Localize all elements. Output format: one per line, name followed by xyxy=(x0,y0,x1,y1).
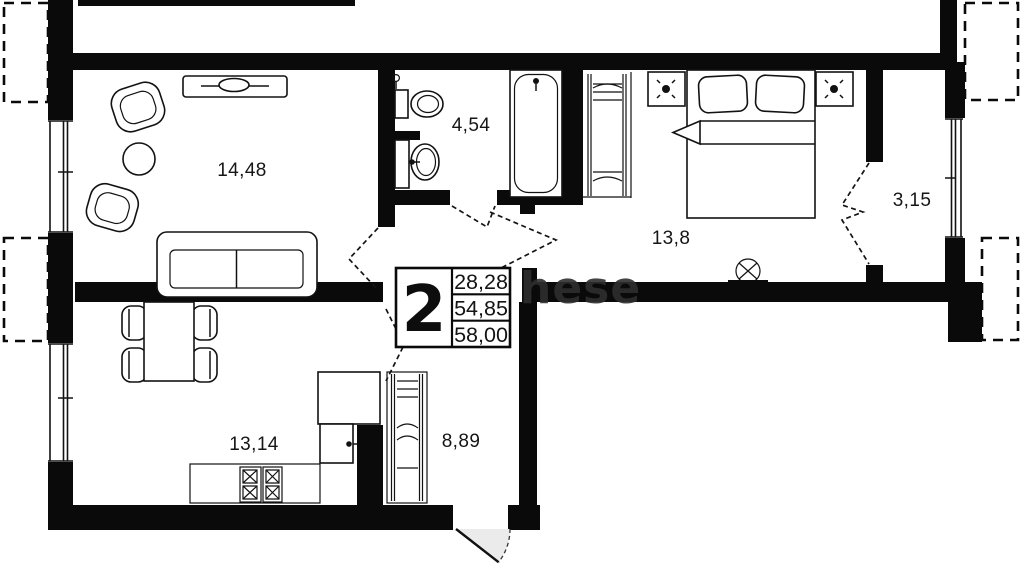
sink-icon xyxy=(395,140,439,188)
stove-icon xyxy=(240,467,282,502)
balcony-dashed-bottom-right xyxy=(982,238,1018,340)
living-room-furniture xyxy=(83,76,317,297)
living-room-door xyxy=(349,228,378,290)
vent-icon xyxy=(728,259,768,302)
toilet-icon xyxy=(393,75,443,118)
floor-plan-drawing: hese xyxy=(0,0,1024,564)
fridge-icon xyxy=(320,424,358,463)
floor-plan-canvas: hese xyxy=(0,0,1024,564)
apartment-type-number: 2 xyxy=(402,273,447,347)
info-value-2: 54,85 xyxy=(454,296,508,320)
sofa-icon xyxy=(157,232,317,297)
label-loggia: 3,15 xyxy=(893,190,932,211)
label-bedroom: 13,8 xyxy=(652,228,691,249)
window-loggia-right xyxy=(945,119,963,237)
balcony-door-icon xyxy=(842,163,869,264)
balcony-dashed-top-right xyxy=(965,3,1018,100)
dining-table-icon xyxy=(144,302,194,381)
balcony-dashed-top-left xyxy=(4,3,48,102)
balcony-dashed-mid-left xyxy=(4,238,48,341)
entrance-door-swing-icon xyxy=(456,529,510,562)
label-living-room: 14,48 xyxy=(217,160,267,181)
hallway-wardrobe xyxy=(387,372,427,503)
armchair-icon xyxy=(83,180,142,235)
window-kitchen-left xyxy=(48,344,73,461)
kitchen-furniture xyxy=(122,302,380,503)
label-hallway: 8,89 xyxy=(442,431,481,452)
tv-console-icon xyxy=(183,76,287,97)
bathtub-icon xyxy=(510,70,562,197)
info-value-3: 58,00 xyxy=(454,323,508,347)
info-value-1: 28,28 xyxy=(454,270,508,294)
bathroom-door xyxy=(452,206,495,227)
bedroom-wardrobe xyxy=(583,72,631,198)
watermark-text: hese xyxy=(520,263,641,314)
label-bathroom: 4,54 xyxy=(452,115,491,136)
bedroom-door xyxy=(490,212,556,269)
apartment-info-box: 2 28,28 54,85 58,00 xyxy=(396,268,510,347)
coffee-table-icon xyxy=(123,143,155,175)
double-bed-icon xyxy=(673,70,815,218)
label-kitchen: 13,14 xyxy=(229,434,279,455)
armchair-icon xyxy=(107,78,168,135)
cabinet-icon xyxy=(318,372,380,424)
window-living-left xyxy=(48,121,73,232)
